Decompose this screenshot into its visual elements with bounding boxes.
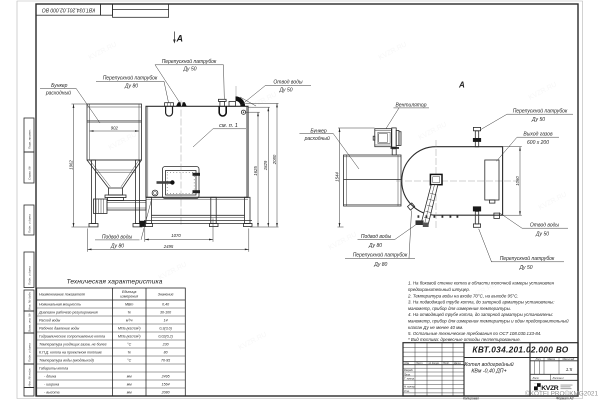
svg-text:мм: мм <box>127 374 132 378</box>
svg-text:Техническая характеристика: Техническая характеристика <box>67 279 163 286</box>
svg-text:Масса: Масса <box>548 358 556 361</box>
svg-text:№ докум.: № докум. <box>429 362 440 365</box>
svg-text:Н. контр.: Н. контр. <box>404 386 416 389</box>
svg-text:Ду 50: Ду 50 <box>278 88 292 94</box>
svg-text:предохранительный штуцер.: предохранительный штуцер. <box>408 287 470 292</box>
svg-text:Масштаб: Масштаб <box>563 358 575 361</box>
svg-text:мм: мм <box>127 390 132 394</box>
svg-text:расходный: расходный <box>45 90 71 97</box>
svg-text:Гидравлическое сопротивление к: Гидравлическое сопротивление котла <box>39 334 105 338</box>
svg-text:КВм -0,40 ДП+: КВм -0,40 ДП+ <box>471 369 506 375</box>
svg-text:Перепускной патрубок: Перепускной патрубок <box>103 75 158 82</box>
svg-text:Габариты котла: Габариты котла <box>39 366 68 370</box>
svg-text:Ду 50: Ду 50 <box>535 232 549 238</box>
svg-text:1. На боковой стенке котла в: 1. На боковой стенке котла в области топ… <box>408 281 555 286</box>
svg-text:Номинальная мощность: Номинальная мощность <box>39 302 81 306</box>
svg-text:Взам. инв. №: Взам. инв. № <box>28 313 32 332</box>
svg-text:Подп. и дата: Подп. и дата <box>28 266 32 285</box>
svg-text:Разраб.: Разраб. <box>404 369 413 372</box>
svg-text:Лист: Лист <box>415 362 422 365</box>
svg-text:Перепускной патрубок: Перепускной патрубок <box>162 58 217 65</box>
svg-text:Температура воды (вход/выход): Температура воды (вход/выход) <box>39 358 94 362</box>
svg-text:14: 14 <box>164 318 168 322</box>
svg-text:Копировал: Копировал <box>463 397 479 400</box>
svg-text:Дата: Дата <box>453 362 461 365</box>
svg-text:0,3(3,0): 0,3(3,0) <box>159 326 171 330</box>
svg-text:Листов 1: Листов 1 <box>552 377 565 380</box>
svg-text:м³/ч: м³/ч <box>126 318 133 322</box>
svg-text:902: 902 <box>111 125 119 130</box>
svg-text:Ду 80: Ду 80 <box>124 83 138 89</box>
svg-text:см. п. 1: см. п. 1 <box>219 123 238 129</box>
svg-text:1060: 1060 <box>515 176 520 186</box>
svg-text:Единица: Единица <box>122 290 136 294</box>
svg-text:Значение: Значение <box>158 293 174 297</box>
svg-text:Ду 80: Ду 80 <box>110 243 124 249</box>
svg-text:Инв. № подл.: Инв. № подл. <box>28 368 32 387</box>
svg-text:измерения: измерения <box>120 295 138 299</box>
svg-text:КВТ.034.201.02.000 ВО: КВТ.034.201.02.000 ВО <box>472 344 568 354</box>
svg-text:Пров.: Пров. <box>404 373 411 376</box>
svg-text:1625: 1625 <box>253 166 258 176</box>
svg-text:80: 80 <box>164 350 168 354</box>
svg-text:1:5: 1:5 <box>566 367 573 372</box>
svg-text:А: А <box>458 81 465 90</box>
svg-text:КВТ.034.201.02.000 ВО: КВТ.034.201.02.000 ВО <box>42 7 95 13</box>
svg-text:- длина: - длина <box>44 374 56 378</box>
svg-text:Перв. примен.: Перв. примен. <box>28 129 32 149</box>
svg-text:Формат А3: Формат А3 <box>556 397 574 400</box>
svg-text:°С: °С <box>127 358 131 362</box>
svg-text:клапан Ду не менее 40 мм.: клапан Ду не менее 40 мм. <box>408 325 463 330</box>
svg-text:мм: мм <box>127 382 132 386</box>
svg-text:Перепускной патрубок: Перепускной патрубок <box>513 108 568 115</box>
svg-text:2495: 2495 <box>161 374 170 378</box>
svg-text:Справ. №: Справ. № <box>28 166 32 180</box>
svg-text:Лист: Лист <box>532 377 539 380</box>
svg-text:1564: 1564 <box>162 382 170 386</box>
svg-text:манометр, прибор для измерени: манометр, прибор для измерения температу… <box>408 319 569 324</box>
svg-text:МВт: МВт <box>125 302 133 306</box>
svg-text:Диапазон рабочего регулировани: Диапазон рабочего регулирования <box>38 310 98 314</box>
svg-text:Перепускной патрубок: Перепускной патрубок <box>500 255 555 262</box>
svg-text:Подп. и дата: Подп. и дата <box>28 343 32 362</box>
svg-text:230: 230 <box>162 342 169 346</box>
svg-text:Инв. № дубл.: Инв. № дубл. <box>28 291 32 310</box>
svg-text:Утв.: Утв. <box>404 390 410 393</box>
svg-text:Перепускной патрубок: Перепускной патрубок <box>353 252 408 259</box>
svg-text:Выход газов: Выход газов <box>523 132 553 138</box>
svg-text:Отвод воды: Отвод воды <box>530 223 560 229</box>
svg-text:Ду 50: Ду 50 <box>182 67 196 73</box>
svg-text:Рабочее давление воды: Рабочее давление воды <box>39 326 80 330</box>
svg-text:Ду 80: Ду 80 <box>373 262 387 268</box>
svg-text:МПа (кгс/см²): МПа (кгс/см²) <box>118 326 141 330</box>
svg-text:1070: 1070 <box>171 233 181 238</box>
svg-text:3. На подводящей трубе котла,: 3. На подводящей трубе котла, до запорно… <box>408 300 555 305</box>
svg-text:Вентилятор: Вентилятор <box>396 102 427 108</box>
svg-text:5. Остальные технические треб: 5. Остальные технические требования по О… <box>408 331 541 336</box>
svg-text:Температура уходящих газов, не: Температура уходящих газов, не более <box>39 342 107 346</box>
svg-text:Подвод воды: Подвод воды <box>102 234 133 240</box>
svg-text:2080: 2080 <box>161 390 170 394</box>
svg-text:А: А <box>176 34 184 44</box>
svg-text:2080: 2080 <box>272 154 277 165</box>
svg-text:30-100: 30-100 <box>160 310 171 314</box>
svg-text:Котел водогрейный: Котел водогрейный <box>464 361 513 368</box>
svg-text:Ду 80: Ду 80 <box>368 243 382 249</box>
svg-text:Наименование показателя: Наименование показателя <box>39 293 85 297</box>
svg-text:Отвод воды: Отвод воды <box>273 80 303 86</box>
svg-text:Расход воды: Расход воды <box>39 318 61 322</box>
svg-text:1829: 1829 <box>263 160 268 170</box>
svg-text:Т. контр.: Т. контр. <box>404 377 415 380</box>
svg-text:1544: 1544 <box>334 172 339 182</box>
svg-text:МПа (кгс/см²): МПа (кгс/см²) <box>118 334 141 338</box>
svg-text:Ду 50: Ду 50 <box>518 265 532 271</box>
svg-text:Подп.: Подп. <box>443 362 450 365</box>
svg-text:расходный: расходный <box>304 135 330 142</box>
svg-text:- ширина: - ширина <box>44 382 59 386</box>
svg-text:* Вид топлива: древесные отхо: * Вид топлива: древесные отходы пеллетир… <box>408 337 521 342</box>
svg-text:70-95: 70-95 <box>161 358 170 362</box>
svg-text:2495: 2495 <box>163 244 174 249</box>
svg-text:0,02(0,2): 0,02(0,2) <box>158 334 172 338</box>
svg-text:Подп. и дата: Подп. и дата <box>28 214 32 233</box>
svg-text:Изм: Изм <box>405 362 410 365</box>
svg-text:4. На отводящей трубе котла,: 4. На отводящей трубе котла, до запорной… <box>408 312 554 317</box>
svg-text:0,40: 0,40 <box>162 302 169 306</box>
svg-text:- высота: - высота <box>44 390 59 394</box>
svg-text:Лит.: Лит. <box>535 358 542 361</box>
svg-text:1962: 1962 <box>68 160 73 170</box>
svg-text:Подвод воды: Подвод воды <box>361 234 392 240</box>
svg-text:2. Температура воды на входе: 2. Температура воды на входе 70°С, на вы… <box>407 293 519 298</box>
svg-text:манометр, прибор для измерения: манометр, прибор для измерения температу… <box>408 306 511 311</box>
svg-text:600 х 200: 600 х 200 <box>527 140 549 146</box>
svg-text:К.П.Д. котла на проектном топл: К.П.Д. котла на проектном топливе <box>39 350 102 354</box>
svg-text:°С: °С <box>127 342 131 346</box>
svg-text:Ду 50: Ду 50 <box>531 117 545 123</box>
